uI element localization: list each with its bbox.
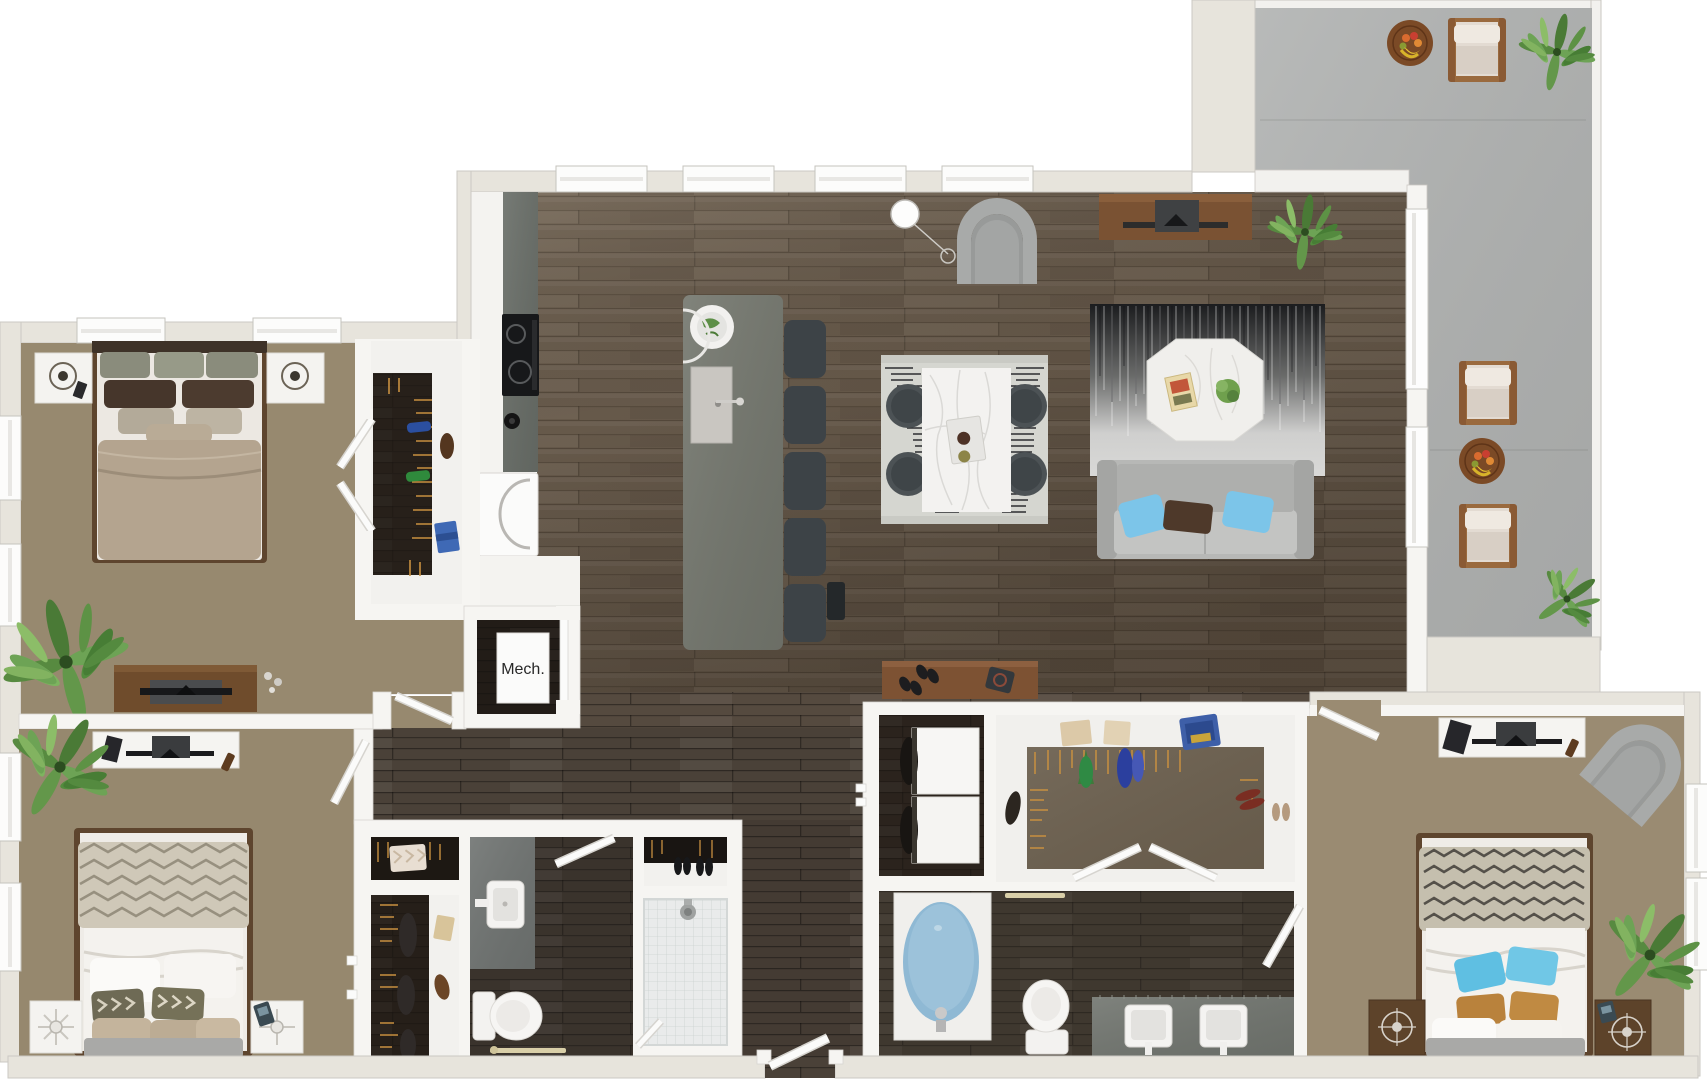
svg-text:Mech.: Mech. <box>501 661 545 678</box>
